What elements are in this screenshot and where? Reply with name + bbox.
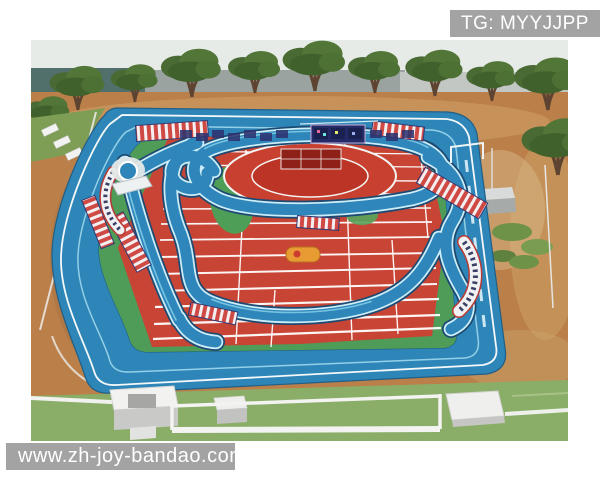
stand-block bbox=[386, 133, 398, 141]
screenshot-root: TG: MYYJJPP www.zh-joy-bandao.com bbox=[0, 0, 600, 480]
stand-block bbox=[180, 130, 192, 138]
stand-block bbox=[276, 130, 288, 138]
footbridge bbox=[297, 216, 340, 231]
stand-block bbox=[244, 130, 256, 138]
watermark-top-right-text: TG: MYYJJPP bbox=[461, 13, 589, 35]
white-ramp bbox=[446, 391, 505, 427]
stand-block bbox=[196, 133, 208, 141]
lawn-path bbox=[172, 429, 440, 430]
watermark-bottom-left-text: www.zh-joy-bandao.com bbox=[18, 445, 246, 468]
stand-block bbox=[228, 133, 240, 141]
stand-block bbox=[402, 130, 414, 138]
white-cube bbox=[214, 396, 247, 424]
orange-float bbox=[286, 247, 320, 262]
photo-illustration bbox=[0, 0, 600, 480]
stand-block bbox=[260, 133, 272, 141]
watermark-top-right: TG: MYYJJPP bbox=[450, 10, 600, 37]
stand-block bbox=[370, 130, 382, 138]
watermark-bottom-left: www.zh-joy-bandao.com bbox=[6, 443, 235, 470]
photo-area bbox=[25, 40, 592, 441]
stand-block bbox=[212, 130, 224, 138]
